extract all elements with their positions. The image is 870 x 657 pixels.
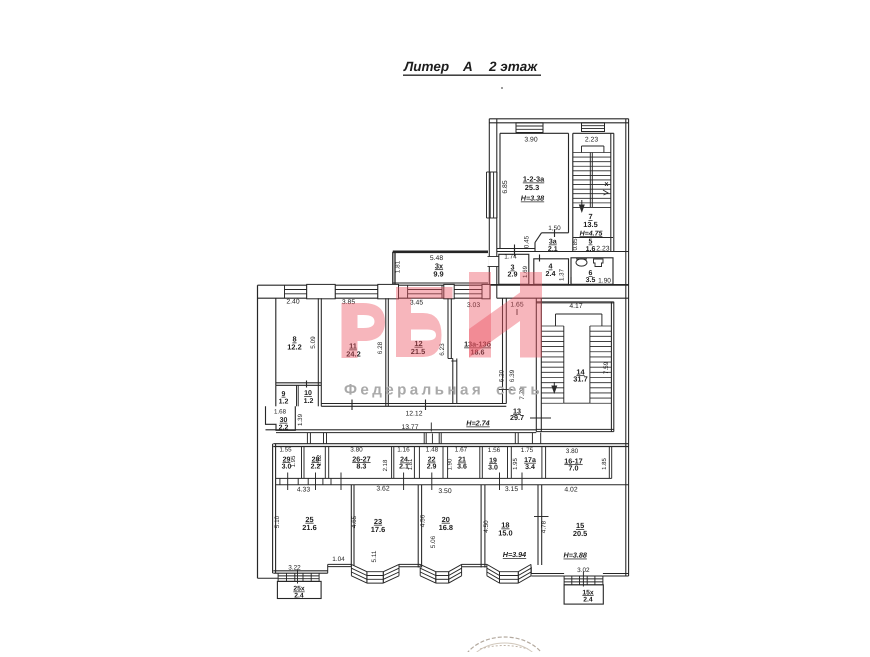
svg-text:3.90: 3.90: [524, 137, 537, 144]
svg-text:сеть: сеть: [496, 381, 543, 398]
svg-text:5.06: 5.06: [430, 535, 437, 548]
svg-text:Литер: Литер: [403, 59, 449, 74]
svg-text:0.45: 0.45: [524, 235, 531, 248]
svg-text:1.75: 1.75: [521, 447, 534, 454]
svg-text:1.37: 1.37: [559, 268, 566, 281]
svg-text:4.50: 4.50: [483, 520, 490, 533]
svg-text:1.16: 1.16: [397, 447, 410, 454]
svg-text:Н=4.75: Н=4.75: [580, 230, 603, 237]
svg-text:Н=3.94: Н=3.94: [503, 550, 526, 559]
svg-text:24: 24: [400, 457, 408, 464]
svg-text:25.3: 25.3: [525, 183, 539, 192]
svg-text:7.0: 7.0: [569, 464, 579, 473]
svg-text:6.20: 6.20: [499, 369, 506, 382]
svg-text:2.4: 2.4: [583, 596, 593, 603]
svg-text:1.04: 1.04: [332, 556, 345, 563]
svg-text:1.2: 1.2: [279, 398, 289, 405]
svg-text:10: 10: [304, 390, 312, 397]
svg-text:х: х: [605, 181, 609, 188]
svg-text:1.81: 1.81: [407, 458, 414, 470]
svg-text:4.56: 4.56: [420, 514, 427, 527]
svg-text:17.6: 17.6: [371, 525, 385, 534]
svg-text:Н=2.74: Н=2.74: [466, 419, 489, 428]
svg-text:9.9: 9.9: [433, 270, 443, 279]
svg-text:4.65: 4.65: [351, 515, 358, 528]
svg-text:15.0: 15.0: [498, 529, 512, 538]
svg-text:1.55: 1.55: [279, 446, 292, 453]
svg-text:3.6: 3.6: [457, 464, 467, 471]
svg-text:1.56: 1.56: [488, 447, 501, 454]
svg-text:1.95: 1.95: [512, 458, 519, 470]
svg-text:1.67: 1.67: [455, 447, 468, 454]
svg-text:5.11: 5.11: [371, 550, 378, 562]
svg-text:Н=3.38: Н=3.38: [521, 194, 544, 203]
svg-text:2.40: 2.40: [286, 299, 299, 306]
svg-text:3.50: 3.50: [438, 488, 451, 495]
svg-text:30: 30: [280, 417, 288, 424]
svg-text:3.62: 3.62: [376, 485, 389, 492]
svg-text:13.77: 13.77: [401, 424, 418, 431]
svg-text:1,50: 1,50: [548, 225, 561, 232]
svg-text:1.74: 1.74: [504, 254, 517, 261]
svg-text:1.90: 1.90: [447, 458, 454, 470]
svg-text:21.6: 21.6: [302, 523, 316, 532]
svg-text:3.5: 3.5: [586, 277, 596, 284]
svg-text:15х: 15х: [582, 589, 594, 596]
svg-text:1.82: 1.82: [316, 454, 323, 466]
svg-text:6.85: 6.85: [502, 180, 509, 193]
svg-text:9: 9: [282, 391, 286, 398]
svg-text:1.81: 1.81: [395, 260, 402, 273]
svg-text:4.17: 4.17: [569, 303, 582, 310]
svg-text:12.12: 12.12: [405, 411, 422, 418]
svg-text:1.68: 1.68: [274, 408, 287, 415]
svg-text:5: 5: [589, 239, 593, 246]
svg-text:22: 22: [428, 457, 436, 464]
svg-text:3.4: 3.4: [525, 464, 535, 471]
svg-text:19: 19: [489, 457, 497, 464]
svg-text:2.23: 2.23: [585, 137, 598, 144]
svg-text:А: А: [462, 59, 473, 74]
svg-text:7.59: 7.59: [603, 361, 610, 374]
svg-text:3.80: 3.80: [566, 448, 579, 455]
svg-text:2.4: 2.4: [294, 592, 304, 599]
svg-text:3.45: 3.45: [410, 300, 423, 307]
svg-text:4.33: 4.33: [297, 486, 310, 493]
svg-text:1.85: 1.85: [601, 458, 608, 470]
svg-text:5.09: 5.09: [310, 336, 317, 349]
svg-text:12.2: 12.2: [287, 343, 301, 352]
svg-text:3.15: 3.15: [505, 486, 518, 493]
svg-text:2 этаж: 2 этаж: [488, 59, 538, 74]
svg-text:3.0: 3.0: [488, 464, 498, 471]
svg-text:4.78: 4.78: [540, 520, 547, 533]
svg-text:21: 21: [458, 457, 466, 464]
svg-text:2.4: 2.4: [546, 269, 556, 278]
svg-text:2.9: 2.9: [427, 464, 437, 471]
svg-text:Н=3.88: Н=3.88: [564, 551, 587, 560]
svg-text:1.2: 1.2: [304, 398, 314, 405]
svg-text:2.9: 2.9: [508, 270, 518, 279]
svg-text:3а: 3а: [549, 239, 557, 246]
svg-text:20.5: 20.5: [573, 529, 587, 538]
svg-text:1.39: 1.39: [297, 413, 304, 426]
svg-text:3.80: 3.80: [350, 447, 363, 454]
svg-text:5.10: 5.10: [274, 515, 281, 528]
svg-text:13.5: 13.5: [583, 220, 597, 229]
svg-text:2.18: 2.18: [382, 459, 389, 471]
svg-text:Федеральная: Федеральная: [344, 381, 484, 398]
svg-text:6.28: 6.28: [377, 341, 384, 354]
svg-text:1.95: 1.95: [290, 455, 297, 467]
svg-text:1.48: 1.48: [426, 446, 439, 453]
svg-text:8.3: 8.3: [356, 462, 366, 471]
svg-text:6.39: 6.39: [509, 369, 516, 382]
svg-text:0.85: 0.85: [572, 238, 579, 251]
svg-text:4.02: 4.02: [564, 486, 577, 493]
svg-text:29.7: 29.7: [510, 413, 524, 422]
svg-text:29: 29: [283, 456, 291, 463]
svg-text:16.8: 16.8: [439, 523, 453, 532]
svg-text:31.7: 31.7: [573, 375, 587, 384]
svg-text:17а: 17а: [524, 457, 536, 464]
svg-text:1.90: 1.90: [598, 278, 611, 285]
